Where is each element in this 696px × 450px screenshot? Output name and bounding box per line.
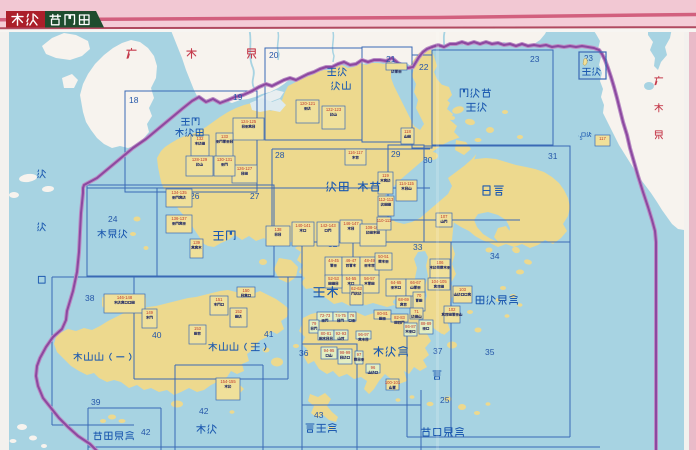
svg-text:126-127: 126-127	[237, 166, 253, 171]
svg-text:52-53: 52-53	[328, 276, 339, 281]
svg-text:149: 149	[146, 310, 154, 315]
svg-text:150: 150	[243, 288, 251, 293]
svg-text:48-49: 48-49	[364, 258, 375, 263]
svg-text:43: 43	[314, 410, 324, 420]
svg-text:27: 27	[250, 191, 260, 201]
svg-text:68-69: 68-69	[398, 297, 409, 302]
svg-text:28: 28	[275, 150, 285, 160]
svg-text:122-123: 122-123	[326, 107, 342, 112]
svg-text:71: 71	[414, 309, 419, 314]
svg-text:86-87: 86-87	[405, 324, 416, 329]
svg-text:42: 42	[141, 427, 151, 437]
svg-text:31: 31	[548, 151, 558, 161]
svg-text:56-57: 56-57	[364, 276, 375, 281]
svg-text:29: 29	[391, 149, 401, 159]
svg-text:35: 35	[485, 347, 495, 357]
svg-text:110-111: 110-111	[377, 218, 392, 223]
svg-text:50-51: 50-51	[378, 254, 389, 259]
svg-text:103: 103	[459, 287, 467, 292]
svg-text:46-47: 46-47	[346, 258, 357, 263]
svg-text:42: 42	[199, 406, 209, 416]
svg-text:136-137: 136-137	[171, 216, 187, 221]
svg-text:79: 79	[312, 321, 317, 326]
svg-text:20: 20	[269, 50, 279, 60]
svg-text:94-95: 94-95	[324, 348, 335, 353]
svg-text:124-125: 124-125	[241, 119, 257, 124]
svg-text:24: 24	[108, 214, 118, 224]
svg-text:133: 133	[221, 134, 229, 139]
svg-text:40: 40	[152, 330, 162, 340]
svg-text:80-81: 80-81	[377, 311, 388, 316]
svg-text:140-141: 140-141	[295, 223, 311, 228]
svg-text:22: 22	[419, 62, 429, 72]
svg-text:128-129: 128-129	[192, 157, 208, 162]
svg-text:112-113: 112-113	[379, 197, 394, 202]
svg-text:70: 70	[417, 293, 422, 298]
svg-text:33: 33	[413, 242, 423, 252]
svg-text:72-73: 72-73	[320, 313, 331, 318]
svg-text:104-105: 104-105	[431, 279, 447, 284]
svg-text:41: 41	[264, 329, 274, 339]
svg-text:25: 25	[440, 395, 450, 405]
svg-text:116-117: 116-117	[348, 150, 363, 155]
svg-text:39: 39	[91, 397, 101, 407]
svg-text:152: 152	[235, 309, 243, 314]
svg-text:`5: `5	[578, 136, 583, 142]
svg-text:134-135: 134-135	[171, 190, 187, 195]
svg-text:107: 107	[441, 214, 449, 219]
svg-text:100-101: 100-101	[385, 380, 401, 385]
svg-text:98-99: 98-99	[340, 350, 351, 355]
svg-text:151: 151	[216, 297, 224, 302]
svg-text:62-63: 62-63	[351, 286, 362, 291]
svg-text:114-115: 114-115	[399, 181, 414, 186]
svg-text:80-81: 80-81	[321, 331, 332, 336]
svg-text:97: 97	[357, 352, 362, 357]
svg-text:130-131: 130-131	[217, 157, 233, 162]
svg-text:96: 96	[371, 365, 376, 370]
svg-text:146-148: 146-148	[117, 295, 133, 300]
svg-text:138: 138	[275, 227, 283, 232]
svg-text:21: 21	[386, 54, 396, 64]
svg-text:118: 118	[404, 129, 411, 134]
svg-text:19: 19	[233, 92, 243, 102]
svg-text:146-147: 146-147	[343, 221, 359, 226]
svg-text:74-75: 74-75	[335, 313, 346, 318]
svg-text:38: 38	[85, 293, 95, 303]
svg-text:76: 76	[350, 313, 355, 318]
svg-text:64-65: 64-65	[391, 280, 402, 285]
svg-text:139: 139	[193, 240, 201, 245]
svg-text:120-121: 120-121	[300, 101, 316, 106]
svg-text:117: 117	[599, 136, 606, 141]
svg-text:54-55: 54-55	[346, 276, 357, 281]
svg-text:30: 30	[423, 155, 433, 165]
svg-text:66-67: 66-67	[410, 280, 421, 285]
svg-text:132: 132	[197, 136, 205, 141]
svg-text:92-93: 92-93	[336, 331, 347, 336]
svg-text:88-89: 88-89	[421, 321, 432, 326]
svg-text:142-143: 142-143	[320, 223, 336, 228]
svg-text:23: 23	[530, 54, 540, 64]
svg-text:82-83: 82-83	[394, 315, 405, 320]
svg-text:154-155: 154-155	[220, 379, 236, 384]
svg-text:153: 153	[194, 326, 202, 331]
svg-text:34: 34	[490, 251, 500, 261]
svg-text:119: 119	[382, 173, 389, 178]
svg-text:102: 102	[449, 307, 457, 312]
svg-text:18: 18	[129, 95, 139, 105]
svg-text:44-45: 44-45	[328, 258, 339, 263]
svg-text:36: 36	[299, 348, 309, 358]
svg-text:96-97: 96-97	[358, 332, 369, 337]
